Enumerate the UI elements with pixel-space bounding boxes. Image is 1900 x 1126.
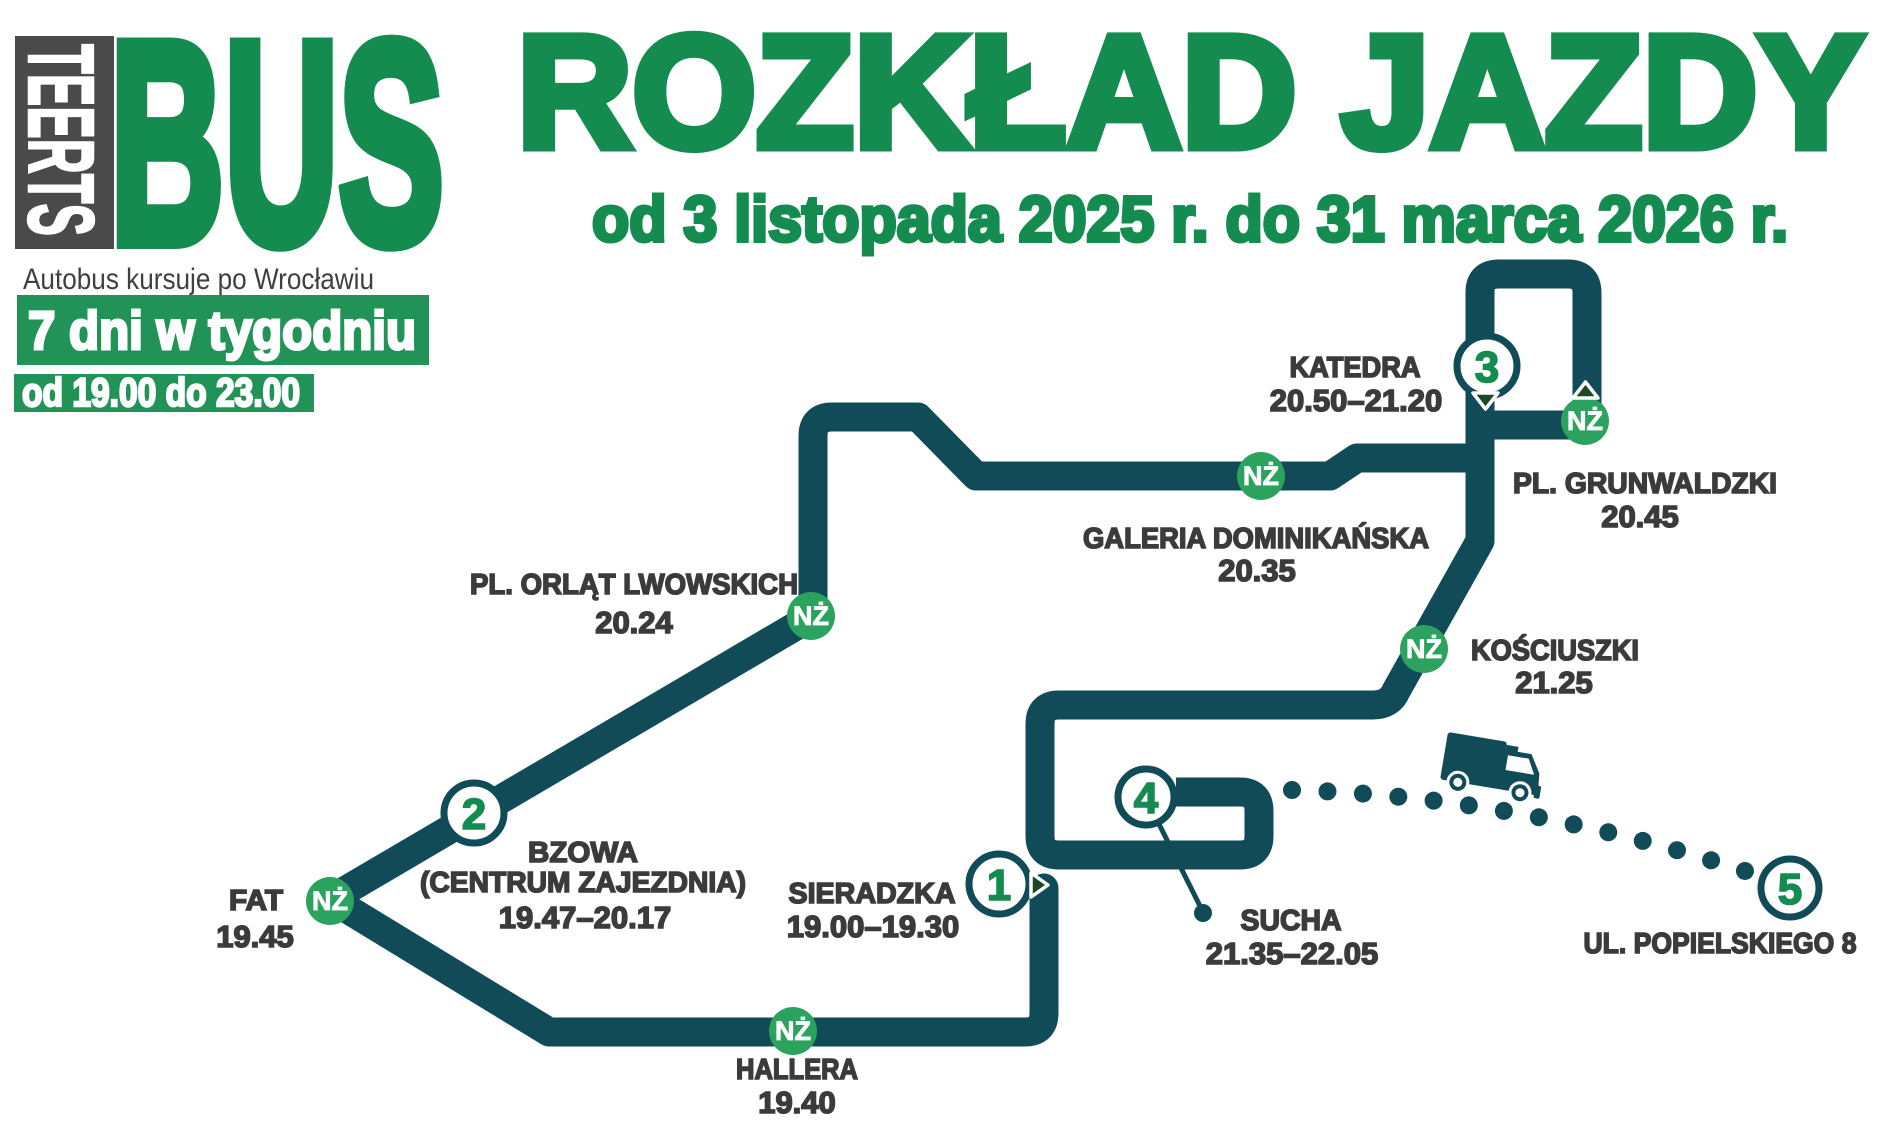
- svg-text:Autobus kursuje po Wrocławiu: Autobus kursuje po Wrocławiu: [23, 263, 374, 296]
- svg-text:20.50–21.20: 20.50–21.20: [1270, 383, 1442, 418]
- svg-text:PL. GRUNWALDZKI: PL. GRUNWALDZKI: [1513, 468, 1777, 500]
- svg-text:HALLERA: HALLERA: [736, 1054, 858, 1086]
- svg-text:NŻ: NŻ: [1567, 406, 1603, 436]
- svg-text:BUS: BUS: [110, 0, 444, 303]
- svg-text:(CENTRUM ZAJEZDNIA): (CENTRUM ZAJEZDNIA): [420, 867, 746, 899]
- svg-text:19.00–19.30: 19.00–19.30: [787, 909, 959, 944]
- svg-text:NŻ: NŻ: [1406, 634, 1442, 664]
- svg-text:20.35: 20.35: [1218, 553, 1296, 588]
- svg-text:1: 1: [987, 861, 1011, 910]
- svg-text:SUCHA: SUCHA: [1241, 905, 1342, 937]
- svg-text:SIERADZKA: SIERADZKA: [789, 878, 956, 910]
- svg-text:21.35–22.05: 21.35–22.05: [1206, 936, 1378, 971]
- svg-text:20.24: 20.24: [595, 605, 673, 640]
- svg-text:KOŚCIUSZKI: KOŚCIUSZKI: [1471, 633, 1639, 667]
- svg-text:19.45: 19.45: [216, 919, 294, 954]
- svg-text:4: 4: [1134, 774, 1159, 823]
- svg-text:5: 5: [1778, 865, 1802, 914]
- svg-text:NŻ: NŻ: [312, 886, 348, 916]
- svg-text:NŻ: NŻ: [1243, 461, 1279, 491]
- svg-text:PL. ORLĄT LWOWSKICH: PL. ORLĄT LWOWSKICH: [470, 569, 798, 601]
- svg-text:TEERTS: TEERTS: [9, 44, 113, 236]
- svg-text:FAT: FAT: [229, 885, 283, 917]
- svg-text:KATEDRA: KATEDRA: [1290, 352, 1421, 384]
- svg-text:ROZKŁAD JAZDY: ROZKŁAD JAZDY: [517, 2, 1864, 181]
- svg-text:NŻ: NŻ: [793, 601, 829, 631]
- svg-text:od 3 listopada 2025 r. do 31 m: od 3 listopada 2025 r. do 31 marca 2026 …: [592, 183, 1788, 255]
- svg-text:21.25: 21.25: [1515, 665, 1593, 700]
- svg-text:3: 3: [1475, 343, 1499, 392]
- svg-text:19.47–20.17: 19.47–20.17: [499, 900, 671, 935]
- svg-text:2: 2: [462, 790, 486, 839]
- svg-text:GALERIA DOMINIKAŃSKA: GALERIA DOMINIKAŃSKA: [1083, 521, 1429, 555]
- svg-text:BZOWA: BZOWA: [528, 837, 638, 869]
- svg-text:7 dni w tygodniu: 7 dni w tygodniu: [28, 301, 416, 361]
- svg-text:UL. POPIELSKIEGO 8: UL. POPIELSKIEGO 8: [1584, 928, 1857, 960]
- svg-text:19.40: 19.40: [758, 1085, 836, 1120]
- svg-text:NŻ: NŻ: [775, 1016, 811, 1046]
- svg-text:od 19.00 do 23.00: od 19.00 do 23.00: [22, 371, 300, 415]
- svg-text:20.45: 20.45: [1601, 499, 1679, 534]
